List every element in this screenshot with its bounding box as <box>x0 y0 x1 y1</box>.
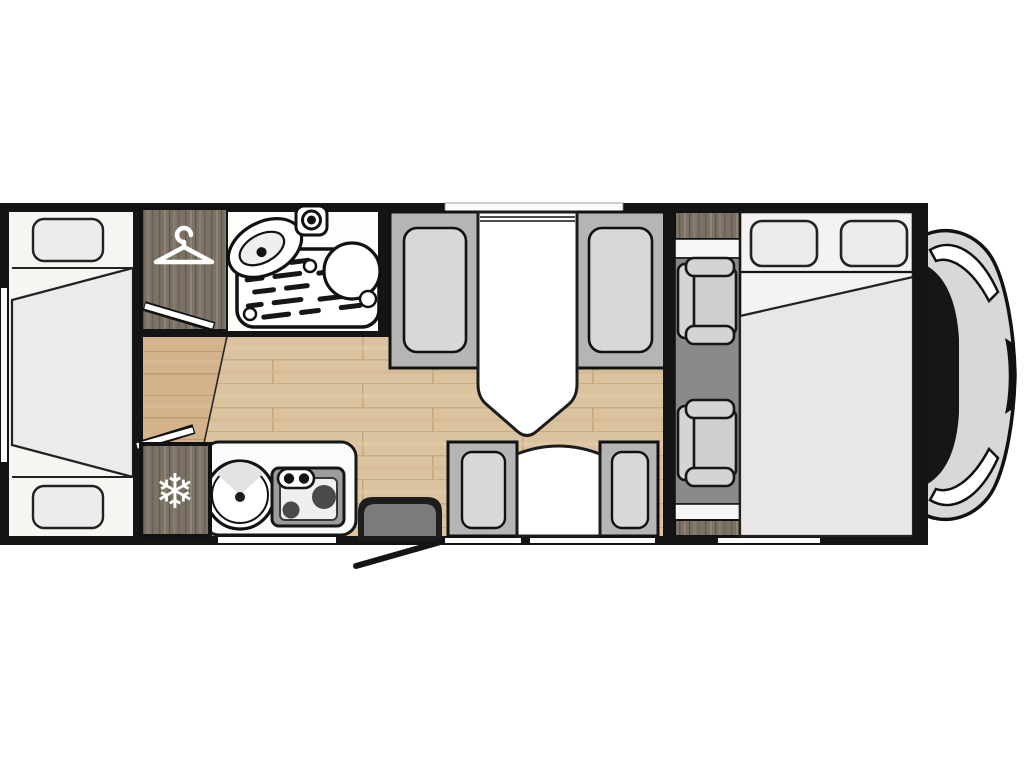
entry-step-mat <box>364 504 436 536</box>
cab-area <box>663 203 740 545</box>
hob <box>272 468 344 526</box>
toilet-flush <box>360 291 376 307</box>
window-dinette-side <box>530 538 655 543</box>
dinette-window-top <box>445 203 623 211</box>
window-kitchen <box>218 537 336 543</box>
kitchen <box>204 442 356 535</box>
shower-drain-1 <box>244 308 256 320</box>
bench-left-cushion <box>404 228 466 352</box>
cab-white-strip-top <box>675 239 740 258</box>
hob-burner-large <box>312 485 336 509</box>
cab-shelf-bottom <box>675 520 740 536</box>
front-wall <box>913 203 928 545</box>
shower-mixer <box>296 206 327 235</box>
cab-seat-passenger <box>678 400 736 486</box>
shower-drain-2 <box>304 260 316 272</box>
floorplan-svg: ❄ <box>0 0 1024 768</box>
bathroom <box>218 203 391 337</box>
snowflake-icon: ❄ <box>155 464 195 520</box>
bench-right-cushion <box>589 228 652 352</box>
floorplan-canvas: ❄ <box>0 0 1024 768</box>
entry <box>356 497 444 566</box>
cab-partition-wall <box>663 203 675 545</box>
hob-burner-small <box>283 502 300 519</box>
rear-bed-pillow-top <box>33 219 103 261</box>
rear-bed-pillow-bottom <box>33 486 103 528</box>
bed-pillow-left <box>751 221 817 266</box>
bed-pillow-right <box>841 221 907 266</box>
cab-shelf-top <box>675 212 740 239</box>
rear-bed-duvet <box>12 268 133 477</box>
side-table <box>517 446 600 536</box>
cab-white-strip-bottom <box>675 504 740 520</box>
drop-down-bed <box>740 203 928 545</box>
side-seat-left-cushion <box>462 452 505 528</box>
rear-wall-window <box>1 288 7 462</box>
cab-seat-driver <box>678 258 736 344</box>
side-seat-right-cushion <box>612 452 648 528</box>
bed-duvet <box>740 277 913 536</box>
dinette-table <box>478 212 577 436</box>
side-dinette <box>448 442 658 536</box>
kitchen-sink-drain <box>235 492 245 502</box>
fridge: ❄ <box>141 444 210 536</box>
window-door-side <box>445 538 521 543</box>
window-bed-side <box>718 538 820 543</box>
